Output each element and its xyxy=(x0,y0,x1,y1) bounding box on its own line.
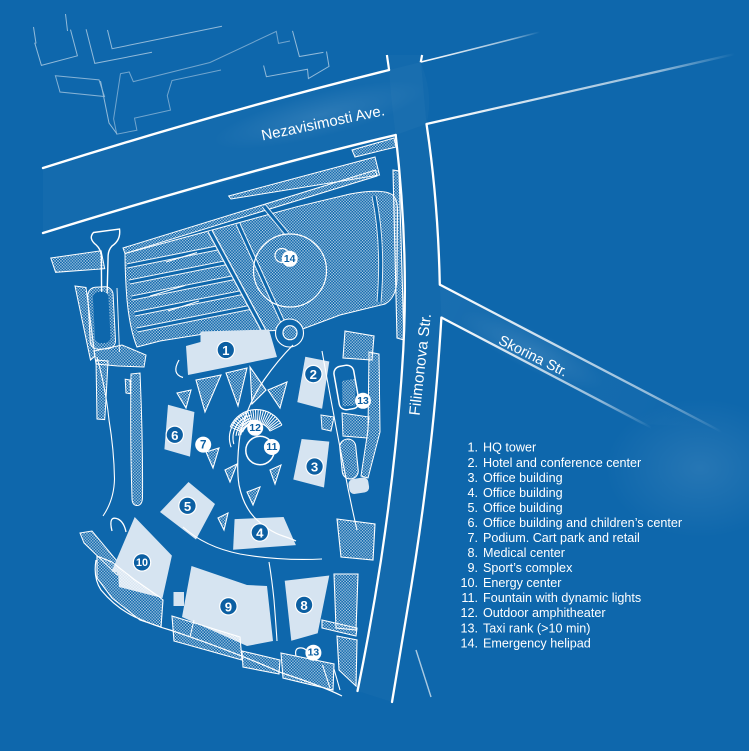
svg-text:9.: 9. xyxy=(467,561,478,575)
svg-text:Podium. Cart park and retail: Podium. Cart park and retail xyxy=(483,531,640,545)
svg-text:14.: 14. xyxy=(460,636,478,650)
svg-text:11: 11 xyxy=(266,442,277,453)
svg-text:10: 10 xyxy=(136,557,148,569)
svg-text:Hotel and conference center: Hotel and conference center xyxy=(483,456,641,470)
svg-text:4: 4 xyxy=(256,526,264,541)
svg-text:12.: 12. xyxy=(460,606,478,620)
svg-text:13.: 13. xyxy=(460,621,478,635)
svg-text:11.: 11. xyxy=(461,591,478,605)
svg-text:2.: 2. xyxy=(467,456,478,470)
svg-text:14: 14 xyxy=(284,254,296,265)
svg-text:12: 12 xyxy=(249,423,261,434)
svg-text:7.: 7. xyxy=(467,531,478,545)
svg-text:Energy center: Energy center xyxy=(483,576,561,590)
svg-text:9: 9 xyxy=(225,599,232,614)
svg-text:Office building: Office building xyxy=(483,486,563,500)
svg-text:7: 7 xyxy=(200,439,206,452)
svg-text:1: 1 xyxy=(222,343,229,358)
svg-text:13: 13 xyxy=(357,396,369,407)
svg-text:Fountain with dynamic lights: Fountain with dynamic lights xyxy=(483,591,641,605)
svg-text:1.: 1. xyxy=(467,441,478,455)
svg-text:5: 5 xyxy=(184,499,191,514)
svg-text:10.: 10. xyxy=(460,576,478,590)
svg-text:5.: 5. xyxy=(467,501,478,515)
svg-text:HQ tower: HQ tower xyxy=(483,441,536,455)
svg-text:8: 8 xyxy=(300,598,307,613)
svg-text:Office building: Office building xyxy=(483,471,563,485)
svg-text:3.: 3. xyxy=(467,471,478,485)
svg-text:8.: 8. xyxy=(467,546,478,560)
svg-text:Outdoor amphitheater: Outdoor amphitheater xyxy=(483,606,606,620)
svg-text:6: 6 xyxy=(171,428,178,443)
svg-text:6.: 6. xyxy=(467,516,478,530)
svg-text:2: 2 xyxy=(310,367,317,382)
svg-text:13: 13 xyxy=(308,648,320,659)
svg-text:4.: 4. xyxy=(467,486,478,500)
svg-text:Sport’s complex: Sport’s complex xyxy=(483,561,573,575)
svg-text:Office building and children’s: Office building and children’s center xyxy=(483,516,682,530)
svg-text:Taxi rank (>10 min): Taxi rank (>10 min) xyxy=(483,621,590,635)
svg-text:Medical center: Medical center xyxy=(483,546,565,560)
svg-text:Emergency helipad: Emergency helipad xyxy=(483,636,591,650)
svg-text:Office building: Office building xyxy=(483,501,563,515)
svg-text:3: 3 xyxy=(311,460,318,475)
